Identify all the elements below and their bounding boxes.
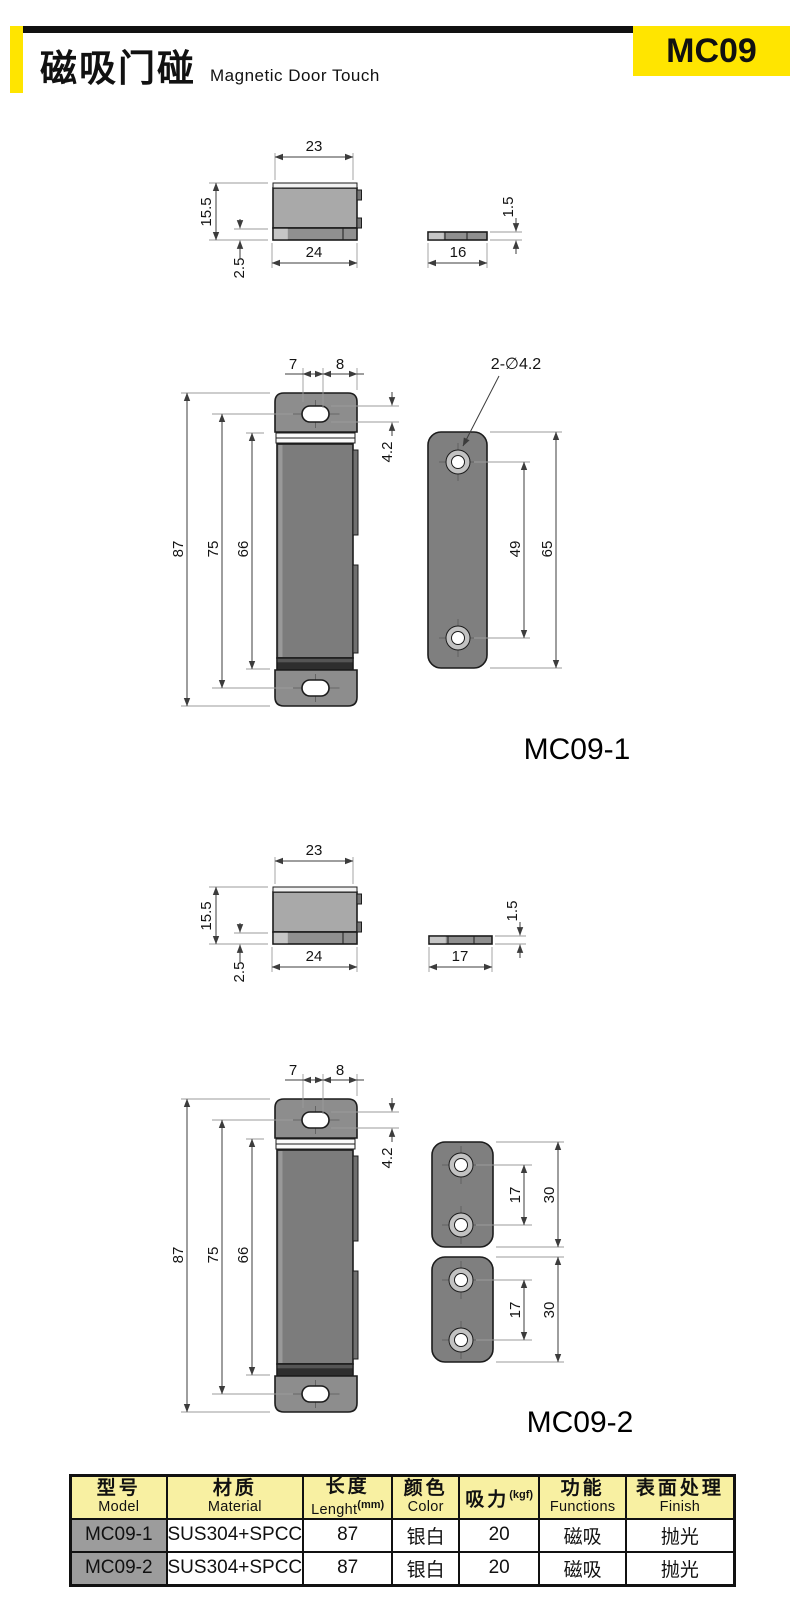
spec-table: 型号Model 材质Material 长度Lenght(mm) 颜色Color … (69, 1474, 736, 1587)
dim-f1-plate-height: 65 (539, 541, 556, 558)
dim-s2-base-height: 2.5 (231, 962, 248, 983)
finish-cell: 抛光 (626, 1552, 734, 1586)
dim-f1-offset7: 7 (289, 356, 297, 373)
hole-callout: 2-∅4.2 (491, 356, 542, 373)
dim-f2-offset8: 8 (336, 1062, 344, 1079)
dim-f1-slot: 4.2 (379, 442, 396, 463)
function-cell: 磁吸 (539, 1519, 626, 1552)
dim-f2-magnet: 66 (235, 1247, 252, 1264)
model-cell: MC09-2 (71, 1552, 167, 1586)
force-cell: 20 (459, 1552, 539, 1586)
model-cell: MC09-1 (71, 1519, 167, 1552)
dim-s1-plate-width: 16 (450, 244, 467, 261)
material-cell: SUS304+SPCC (167, 1552, 304, 1586)
mc09-2-side-view (273, 887, 492, 944)
dim-f1-magnet: 66 (235, 541, 252, 558)
finish-cell: 抛光 (626, 1519, 734, 1552)
dim-f1-body: 75 (205, 541, 222, 558)
header-model: 型号Model (71, 1476, 167, 1519)
length-cell: 87 (303, 1552, 392, 1586)
dim-f2-p2-height: 30 (541, 1302, 558, 1319)
dim-f2-p2-span: 17 (507, 1302, 524, 1319)
variant-label-mc09-2: MC09-2 (500, 1406, 660, 1440)
mc09-2-front-view (275, 1099, 493, 1412)
dim-s1-top-width: 23 (306, 138, 323, 155)
mc09-1-side-view (273, 183, 487, 240)
mc09-1-front-dimensions: 7 8 4.2 87 75 66 2-∅4.2 49 65 (170, 356, 562, 706)
dim-f2-body: 75 (205, 1247, 222, 1264)
function-cell: 磁吸 (539, 1552, 626, 1586)
technical-drawings: 23 15.5 24 2.5 1.5 16 7 8 (0, 0, 790, 1600)
header-color: 颜色Color (392, 1476, 459, 1519)
mc09-2-front-dimensions: 7 8 4.2 87 75 66 17 30 17 30 (170, 1062, 564, 1412)
dim-f1-offset8: 8 (336, 356, 344, 373)
mc09-2-side-dimensions: 23 15.5 24 2.5 1.5 17 (198, 842, 526, 982)
header-material: 材质Material (167, 1476, 304, 1519)
header-length: 长度Lenght(mm) (303, 1476, 392, 1519)
dim-s2-plate-thickness: 1.5 (504, 901, 521, 922)
dim-f1-hole-span: 49 (507, 541, 524, 558)
dim-s2-height: 15.5 (198, 901, 215, 930)
dim-f2-p1-span: 17 (507, 1187, 524, 1204)
dim-f2-offset7: 7 (289, 1062, 297, 1079)
dim-s1-height: 15.5 (198, 197, 215, 226)
dim-f1-total: 87 (170, 541, 187, 558)
force-cell: 20 (459, 1519, 539, 1552)
header-functions: 功能Functions (539, 1476, 626, 1519)
dim-s2-plate-width: 17 (452, 948, 469, 965)
mc09-1-side-dimensions: 23 15.5 24 2.5 1.5 16 (198, 138, 522, 278)
dim-s2-bottom-width: 24 (306, 948, 323, 965)
spec-row-mc09-1: MC09-1 SUS304+SPCC 87 银白 20 磁吸 抛光 (71, 1519, 735, 1552)
mc09-1-front-view (275, 393, 487, 706)
dim-s1-bottom-width: 24 (306, 244, 323, 261)
header-force: 吸力(kgf) (459, 1476, 539, 1519)
length-cell: 87 (303, 1519, 392, 1552)
dim-f2-slot: 4.2 (379, 1148, 396, 1169)
header-finish: 表面处理Finish (626, 1476, 734, 1519)
variant-label-mc09-1: MC09-1 (497, 733, 657, 767)
color-cell: 银白 (392, 1519, 459, 1552)
color-cell: 银白 (392, 1552, 459, 1586)
dim-s2-top-width: 23 (306, 842, 323, 859)
spec-row-mc09-2: MC09-2 SUS304+SPCC 87 银白 20 磁吸 抛光 (71, 1552, 735, 1586)
dim-s1-plate-thickness: 1.5 (500, 197, 517, 218)
material-cell: SUS304+SPCC (167, 1519, 304, 1552)
dim-f2-p1-height: 30 (541, 1187, 558, 1204)
dim-s1-base-height: 2.5 (231, 258, 248, 279)
dim-f2-total: 87 (170, 1247, 187, 1264)
spec-header-row: 型号Model 材质Material 长度Lenght(mm) 颜色Color … (71, 1476, 735, 1519)
